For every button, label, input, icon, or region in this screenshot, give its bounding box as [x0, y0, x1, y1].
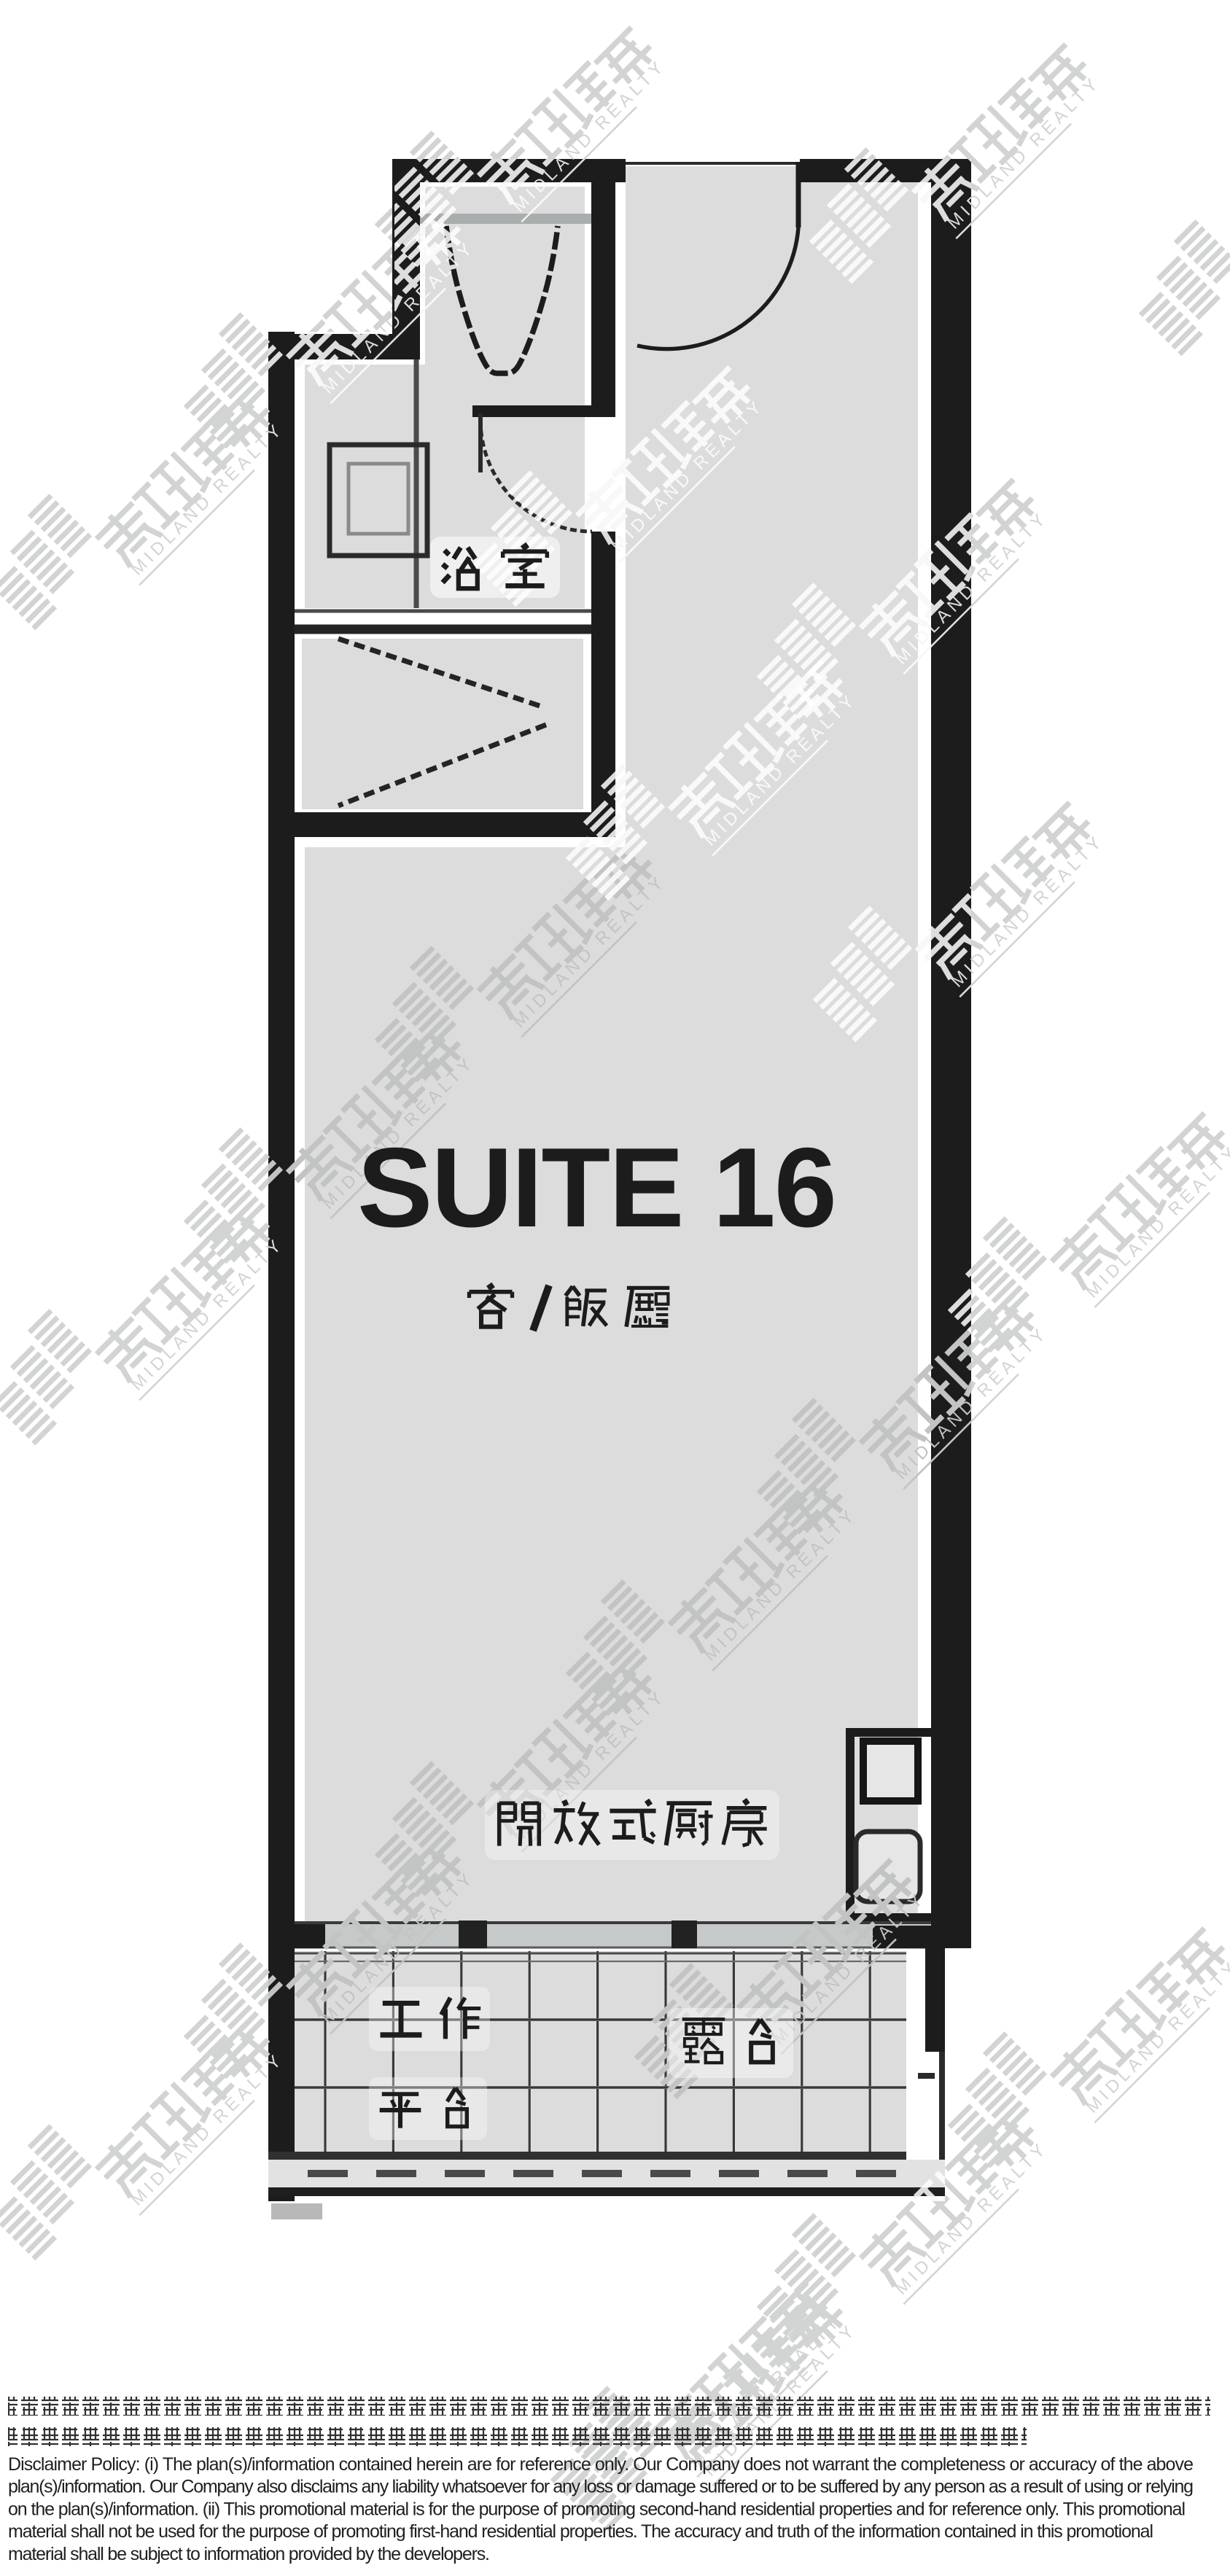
svg-text:plan(s)/information. Our Compa: plan(s)/information. Our Company also di… [8, 2477, 1194, 2497]
svg-text:Disclaimer Policy: (i) The pla: Disclaimer Policy: (i) The plan(s)/infor… [8, 2454, 1194, 2475]
svg-text:SUITE 16: SUITE 16 [357, 1124, 836, 1250]
svg-text:material shall not be used for: material shall not be used for the purpo… [8, 2521, 1153, 2542]
svg-text:on the plan(s)/information. (i: on the plan(s)/information. (ii) This pr… [8, 2499, 1186, 2519]
svg-text:material shall be subject to i: material shall be subject to information… [8, 2544, 490, 2564]
